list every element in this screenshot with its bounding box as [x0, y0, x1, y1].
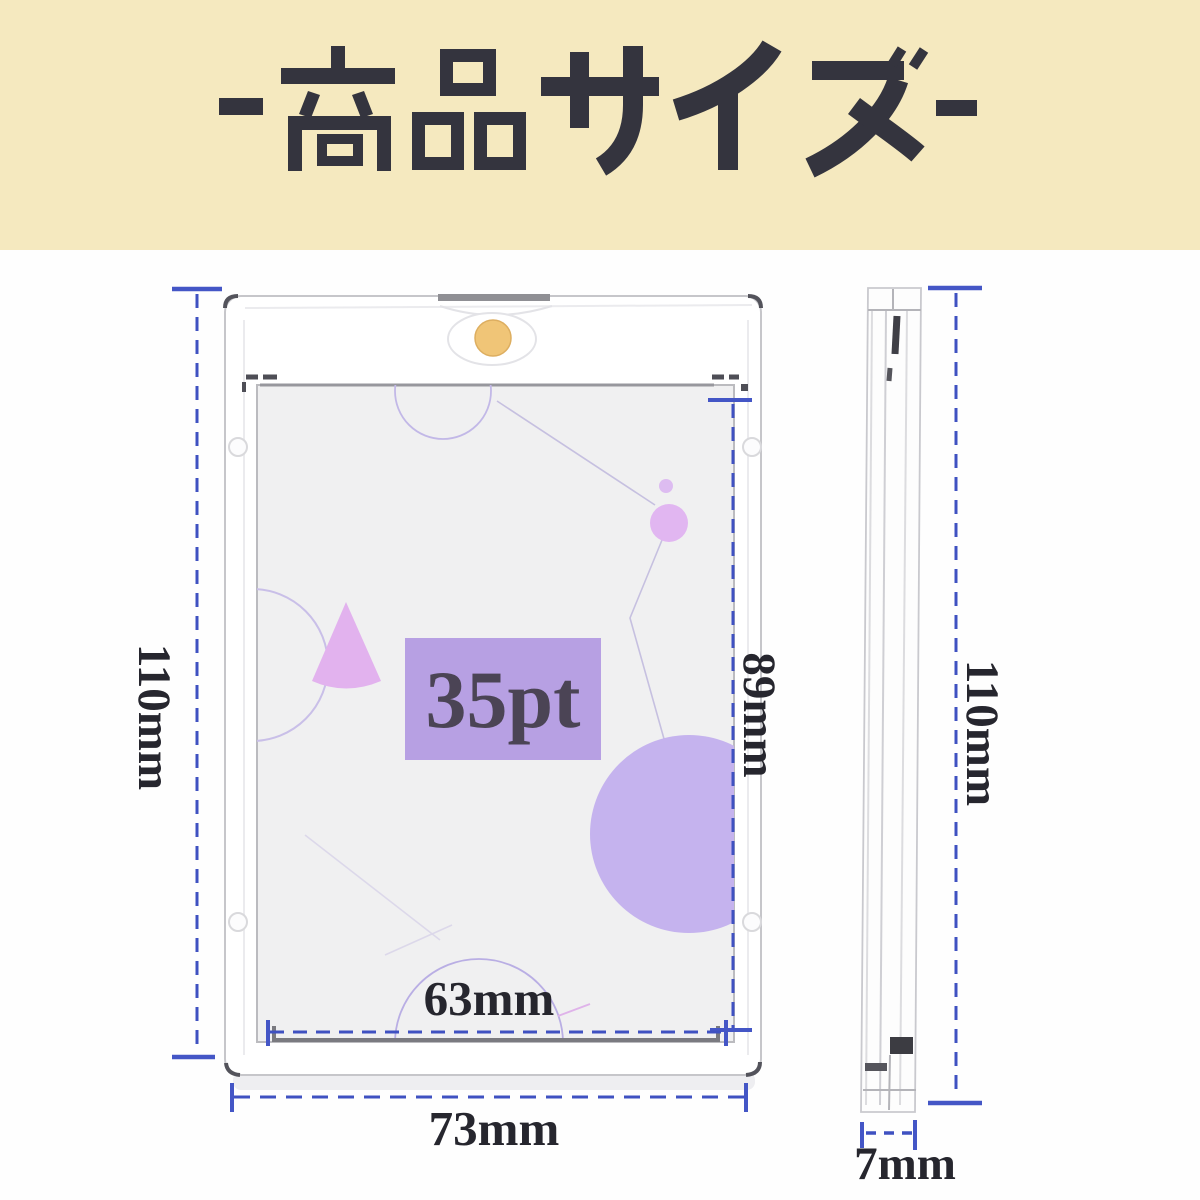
svg-text:7mm: 7mm — [854, 1138, 956, 1190]
svg-text:110mm: 110mm — [956, 660, 1008, 806]
svg-text:63mm: 63mm — [424, 971, 555, 1026]
svg-text:35pt: 35pt — [426, 654, 581, 745]
svg-text:73mm: 73mm — [429, 1101, 560, 1156]
svg-text:110mm: 110mm — [128, 644, 180, 790]
svg-text:89mm: 89mm — [733, 652, 785, 777]
